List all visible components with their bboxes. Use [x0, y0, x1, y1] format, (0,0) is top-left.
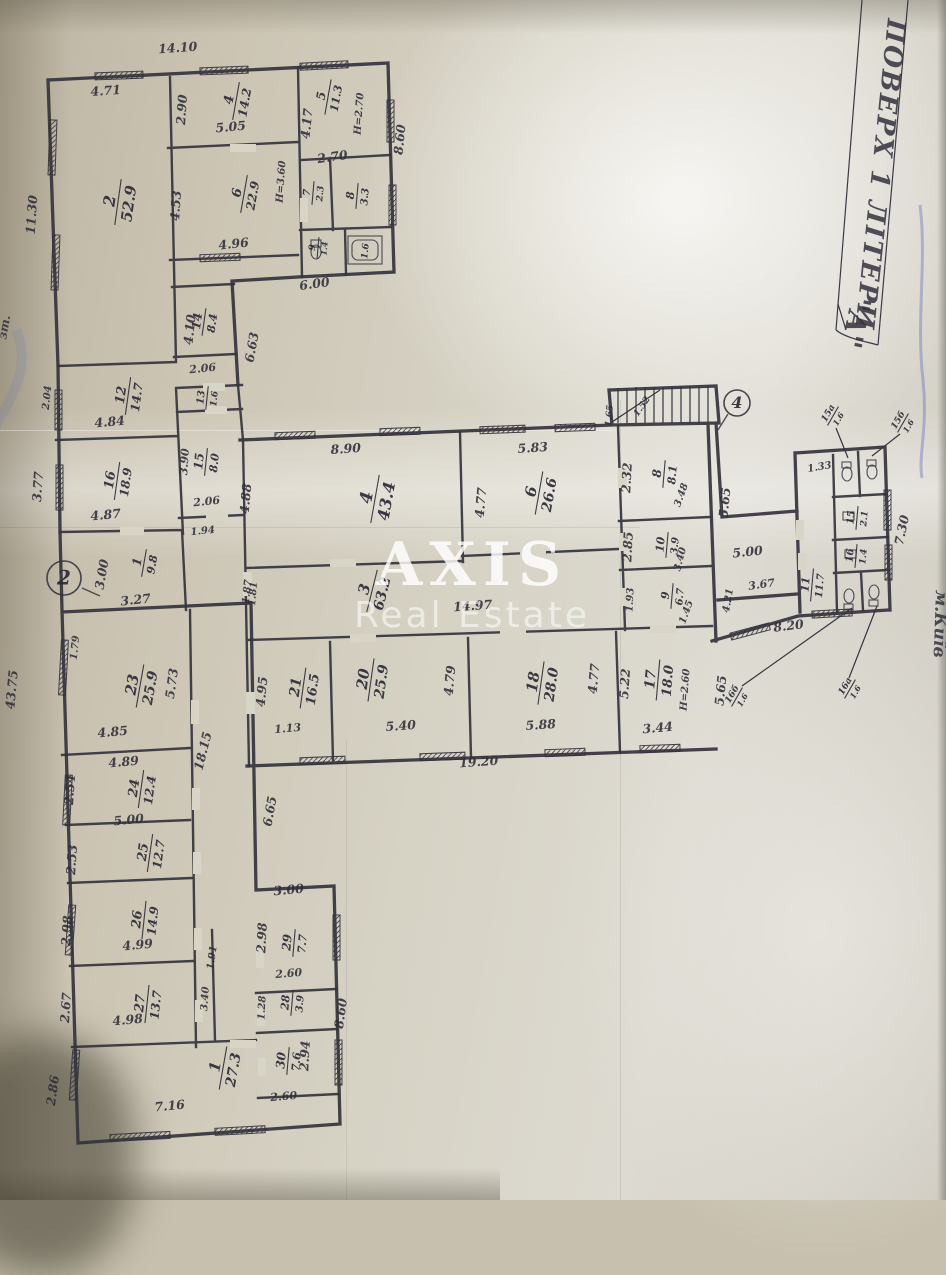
dimension-label: 11.30 — [23, 194, 41, 234]
svg-text:26.6: 26.6 — [539, 476, 561, 514]
dimension-label: 2.60 — [274, 966, 303, 981]
dimension-label: 2.98 — [58, 915, 75, 948]
svg-text:14.9: 14.9 — [144, 905, 161, 936]
plan-labels: 252.9414.2622.9511.372.383.391.41.6148.4… — [2, 39, 918, 1115]
staircase — [612, 386, 708, 423]
dimension-label: 6.65 — [260, 795, 280, 828]
room-label: 252.9 — [97, 177, 141, 228]
dimension-label: 3.67 — [747, 576, 776, 593]
dimension-label: 5.73 — [162, 667, 181, 700]
dimension-label: 8.20 — [772, 616, 804, 635]
dimension-label: Н=2.70 — [352, 92, 366, 136]
room-label: 2025.9 — [351, 656, 393, 704]
dimension-label: 4.79 — [441, 664, 459, 696]
dimension-label: 2.06 — [188, 361, 217, 377]
dimension-label: 4.85 — [97, 723, 129, 741]
svg-text:8.4: 8.4 — [205, 313, 221, 334]
dimension-label: 2.04 — [41, 385, 55, 411]
svg-text:2.1: 2.1 — [859, 510, 870, 527]
room-label: 1718.0 — [641, 658, 677, 702]
dimension-label: 5.65 — [715, 487, 733, 519]
dimension-label: Н=3.60 — [274, 160, 288, 204]
svg-text:18.0: 18.0 — [660, 664, 678, 697]
svg-text:15: 15 — [845, 510, 857, 525]
dimension-label: 8.60 — [390, 123, 408, 155]
dimension-label: 7.30 — [891, 513, 912, 546]
room-label: 1828.0 — [521, 659, 563, 707]
svg-text:15: 15 — [191, 452, 207, 470]
svg-text:13: 13 — [195, 390, 207, 405]
room-label: 16а1.6 — [836, 675, 865, 704]
svg-text:14.2: 14.2 — [235, 87, 254, 118]
svg-text:11.7: 11.7 — [814, 573, 827, 598]
dimension-label: 2.67 — [57, 992, 74, 1025]
svg-text:28: 28 — [278, 994, 292, 1012]
dimension-label: 4.84 — [94, 413, 126, 431]
dimension-label: 8.60 — [331, 997, 350, 1030]
svg-text:9: 9 — [659, 591, 673, 600]
room-label: 15а1.6 — [819, 402, 848, 431]
svg-text:8: 8 — [344, 191, 358, 200]
room-label: 1214.7 — [111, 375, 146, 417]
room-label: 626.6 — [518, 469, 561, 518]
svg-text:2.3: 2.3 — [315, 185, 326, 202]
dimension-label: 3.77 — [29, 471, 46, 503]
dimension-label: 14.97 — [453, 597, 493, 615]
dimension-label: 5.83 — [517, 439, 549, 456]
room-label: 152.1 — [845, 505, 871, 531]
dimension-label: 18.15 — [191, 730, 215, 772]
room-label: 88.1 — [649, 459, 680, 489]
dimension-label: 4.10 — [180, 313, 198, 345]
dimension-label: 2.98 — [253, 922, 270, 954]
dimension-label: 3.40 — [199, 986, 212, 1011]
svg-text:29: 29 — [279, 933, 295, 952]
dimension-label: 14.10 — [158, 39, 198, 57]
city-note: м.Київ — [929, 590, 946, 658]
dimension-label: 3.27 — [120, 590, 152, 608]
dimension-label: 4.77 — [585, 662, 603, 694]
room-label: 127.3 — [202, 1044, 245, 1093]
dimension-label: 4.88 — [237, 482, 255, 514]
dimension-label: 1.93 — [624, 587, 636, 612]
room-label: 443.4 — [353, 472, 400, 527]
dimension-label: 4.17 — [297, 107, 315, 139]
svg-text:23: 23 — [121, 673, 143, 698]
svg-text:25.9: 25.9 — [140, 669, 162, 707]
dimension-label: 4.21 — [721, 588, 736, 614]
dimension-label: 5.00 — [113, 811, 145, 829]
dimension-label: 2.90 — [173, 94, 190, 127]
room-label: 2412.4 — [124, 768, 159, 810]
dimension-label: 1.28 — [256, 995, 268, 1020]
svg-text:16.5: 16.5 — [304, 673, 323, 706]
scanned-floor-plan-photo: { "document": { "side_title": "ПОВЕРХ 1 … — [0, 0, 946, 1200]
entrance-marker: 2 — [47, 561, 100, 596]
svg-text:28.0: 28.0 — [541, 666, 562, 703]
margin-note: зт. — [0, 314, 13, 341]
svg-text:13.7: 13.7 — [147, 989, 164, 1020]
dimension-label: 6.00 — [298, 274, 331, 293]
room-label: 158.0 — [191, 447, 223, 478]
svg-text:18.9: 18.9 — [117, 466, 135, 498]
svg-text:11: 11 — [798, 576, 812, 592]
svg-text:1.4: 1.4 — [318, 241, 329, 256]
room-label: 1.6 — [360, 242, 371, 259]
dimension-label: 4.53 — [167, 190, 184, 222]
dimension-label: 3.00 — [92, 558, 112, 591]
room-label: 283.9 — [278, 989, 307, 1017]
dimension-label: 2.94 — [296, 1040, 313, 1072]
dimension-label: 4.87 — [90, 506, 122, 524]
dimension-label: 1.52 — [632, 395, 653, 419]
room-label: 2116.5 — [285, 666, 323, 711]
room-label: 2614.9 — [128, 899, 162, 940]
dimension-label: 5.88 — [525, 716, 557, 733]
svg-text:12.4: 12.4 — [141, 775, 159, 806]
svg-text:1.6: 1.6 — [360, 242, 371, 259]
svg-text:8: 8 — [650, 468, 665, 478]
svg-text:3.3: 3.3 — [359, 188, 371, 206]
room-label: 414.2 — [219, 80, 255, 123]
dimension-label: 8.90 — [330, 440, 362, 457]
dimension-label: 1.33 — [807, 460, 833, 475]
dimension-label: 2.54 — [61, 774, 78, 806]
room-label: 2325.9 — [119, 662, 162, 711]
dimension-label: 5.65 — [711, 675, 729, 707]
svg-text:4: 4 — [731, 393, 742, 412]
svg-text:2: 2 — [99, 194, 120, 209]
dimension-label: 2.70 — [315, 147, 349, 166]
dimension-label: 2.86 — [43, 1074, 62, 1108]
svg-text:7.7: 7.7 — [295, 933, 310, 954]
dimension-label: Н=2.60 — [678, 668, 692, 712]
svg-text:9.8: 9.8 — [144, 554, 160, 575]
svg-text:27.3: 27.3 — [223, 1051, 245, 1089]
dimension-label: 5.40 — [385, 717, 417, 734]
svg-text:8.1: 8.1 — [665, 465, 680, 485]
dimension-label: 4.77 — [472, 486, 490, 518]
svg-text:12.7: 12.7 — [150, 838, 168, 870]
dimension-label: 4.99 — [122, 936, 154, 954]
room-label: 15б1.6 — [888, 408, 918, 438]
dimension-label: 5.05 — [215, 118, 247, 136]
svg-text:52.9: 52.9 — [117, 184, 140, 223]
room-label: 622.9 — [227, 173, 263, 216]
dimension-label: 2.32 — [618, 462, 635, 494]
dimension-label: 1.79 — [69, 635, 82, 660]
svg-text:11.3: 11.3 — [328, 84, 346, 113]
svg-text:30: 30 — [273, 1051, 288, 1070]
room-label: 19.8 — [128, 547, 161, 579]
svg-text:25.9: 25.9 — [371, 663, 392, 700]
dimension-label: 3.48 — [672, 482, 691, 509]
svg-text:7: 7 — [302, 189, 314, 197]
dimension-label: 4.89 — [108, 753, 140, 771]
svg-text:5: 5 — [313, 90, 328, 101]
side-title: ПОВЕРХ 1 ЛІТЕРИ — [848, 16, 911, 332]
room-label: 363.2 — [350, 566, 395, 617]
floor-plan-svg: ПОВЕРХ 1 ЛІТЕРИ "А" м.Київ зт. 252.9414.… — [0, 0, 946, 1200]
dimension-label: 1.81 — [247, 581, 260, 606]
dimension-label: 1.13 — [274, 721, 302, 736]
entrance-marker: 4 — [718, 390, 750, 430]
room-label: 297.7 — [279, 928, 310, 958]
dimension-label: 3.90 — [177, 448, 192, 476]
dimension-label: 7.16 — [154, 1097, 186, 1115]
room-label: 511.3 — [311, 77, 346, 117]
dimension-label: 43.75 — [2, 669, 20, 709]
dimension-label: 6.63 — [242, 331, 262, 364]
dimension-label: 19.20 — [459, 753, 499, 771]
dimension-label: 4.98 — [112, 1011, 144, 1029]
svg-text:1.4: 1.4 — [858, 548, 869, 564]
dimension-label: 5.22 — [616, 668, 633, 700]
dimension-label: 1.94 — [190, 525, 215, 538]
dimension-label: 4.71 — [90, 82, 121, 99]
room-label: 83.3 — [343, 182, 372, 210]
dimension-label: 2.85 — [619, 531, 636, 563]
room-label: 1111.7 — [798, 567, 828, 602]
svg-text:1: 1 — [129, 556, 144, 567]
dimension-label: 2.06 — [192, 494, 221, 510]
room-label: 161.4 — [844, 543, 870, 569]
dimension-label: 1.91 — [205, 945, 219, 971]
room-label: 1618.9 — [100, 460, 135, 502]
room-label: 2512.7 — [133, 832, 168, 874]
dimension-label: 3.44 — [642, 719, 674, 737]
dimension-label: 5.00 — [732, 542, 764, 560]
svg-text:9: 9 — [308, 243, 319, 251]
svg-text:2: 2 — [56, 565, 71, 589]
dimension-label: 4.95 — [253, 676, 271, 708]
dimension-label: 2.53 — [63, 844, 80, 877]
dimension-label: 4.96 — [218, 234, 250, 252]
dimension-label: 2.60 — [269, 1089, 298, 1104]
dimension-label: 3.00 — [273, 881, 305, 899]
svg-text:10: 10 — [653, 536, 667, 553]
svg-text:3.9: 3.9 — [294, 995, 306, 1013]
svg-text:1.6: 1.6 — [209, 390, 221, 407]
svg-text:8.0: 8.0 — [207, 452, 222, 473]
svg-text:14.7: 14.7 — [128, 381, 146, 413]
svg-text:16: 16 — [844, 548, 856, 563]
dimension-label: 1.65 — [604, 404, 616, 427]
